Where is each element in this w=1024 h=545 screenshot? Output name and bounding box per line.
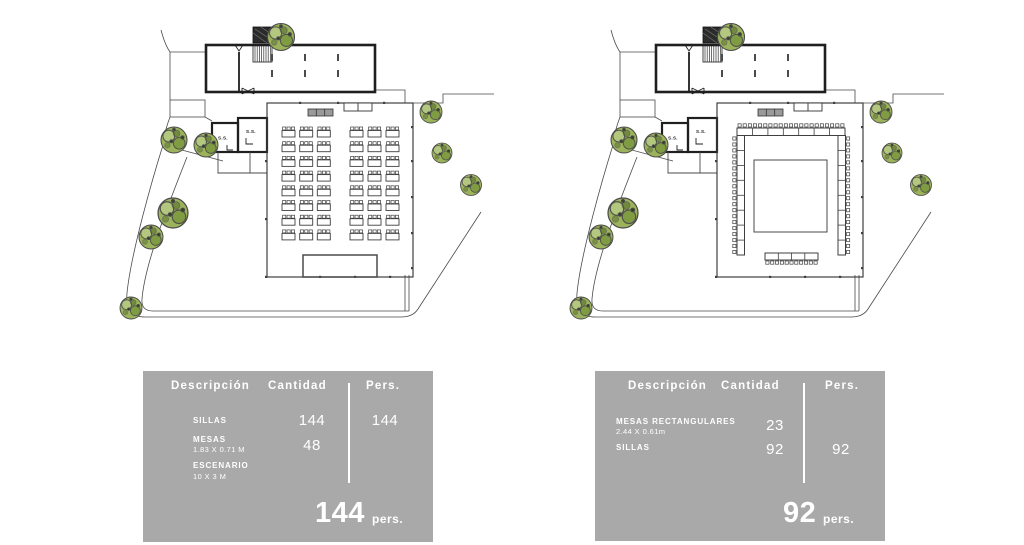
row-label: MESAS xyxy=(193,435,226,444)
summary-panel-banquet: Descripción Cantidad Pers. MESAS RECTANG… xyxy=(595,371,885,541)
row-label: MESAS RECTANGULARES xyxy=(616,417,736,426)
header-quantity: Cantidad xyxy=(268,380,327,392)
total-persons-value: 92 xyxy=(783,497,816,530)
row-qty: 48 xyxy=(291,437,333,454)
row-qty: 92 xyxy=(757,441,793,458)
row-detail: 1.83 X 0.71 M xyxy=(193,445,245,454)
floor-plan-banquet-svg xyxy=(565,5,945,360)
total-persons-unit: pers. xyxy=(823,512,854,526)
row-detail: 10 X 3 M xyxy=(193,472,226,481)
header-quantity: Cantidad xyxy=(721,380,780,392)
row-detail: 2.44 X 0.61m xyxy=(616,427,665,436)
header-persons: Pers. xyxy=(366,380,400,392)
row-qty: 144 xyxy=(291,412,333,429)
total-persons-value: 144 xyxy=(315,497,365,530)
summary-panel-classroom: Descripción Cantidad Pers. SILLAS 144 14… xyxy=(143,371,433,542)
floor-plan-classroom-svg xyxy=(115,5,495,360)
header-description: Descripción xyxy=(171,380,250,392)
header-persons: Pers. xyxy=(825,380,859,392)
banquet-seating xyxy=(733,124,850,264)
column-divider xyxy=(348,383,350,483)
row-label: ESCENARIO xyxy=(193,461,249,470)
total-persons-unit: pers. xyxy=(372,512,403,526)
classroom-seating xyxy=(282,127,399,277)
column-divider xyxy=(803,383,805,483)
venue-layout-sheet: { "colors": { "panel_bg": "#a9a9a9", "pa… xyxy=(0,0,1024,545)
floor-plan-classroom xyxy=(115,5,495,360)
row-pers: 144 xyxy=(361,412,409,429)
row-qty: 23 xyxy=(757,417,793,434)
floor-plan-banquet xyxy=(565,5,945,360)
header-description: Descripción xyxy=(628,380,707,392)
row-label: SILLAS xyxy=(193,416,227,425)
row-label: SILLAS xyxy=(616,443,650,452)
row-pers: 92 xyxy=(819,441,863,458)
